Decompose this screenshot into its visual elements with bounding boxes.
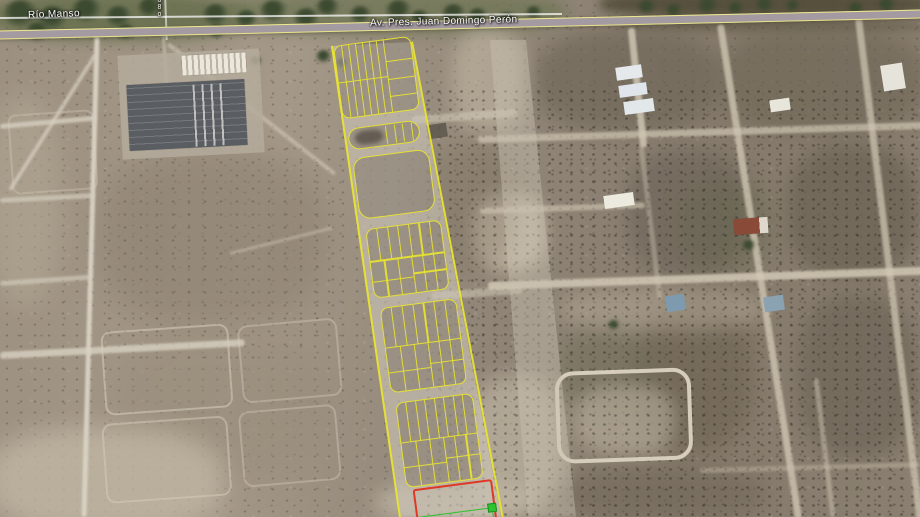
lot-divider <box>424 400 430 439</box>
lot-divider <box>376 229 381 261</box>
substation-poles <box>192 83 225 146</box>
lot-divider <box>397 226 402 258</box>
lot-divider <box>452 396 458 435</box>
lot-divider <box>411 256 417 292</box>
lot-divider <box>413 344 420 388</box>
lot-divider <box>446 453 479 459</box>
lot-divider <box>415 401 421 440</box>
shed-row-3 <box>623 98 655 115</box>
lot-divider <box>433 254 439 290</box>
lot-divider <box>408 225 413 257</box>
lot-divider <box>443 437 450 481</box>
lot-divider <box>390 92 417 97</box>
lot-divider <box>410 122 414 140</box>
lot-divider <box>430 359 463 364</box>
blue-shed-2 <box>763 295 785 313</box>
lot-divider <box>384 260 390 296</box>
map-canvas[interactable]: Río Manso Av. Pres. Juan Domingo Perón o… <box>0 0 920 517</box>
lot-divider <box>454 436 461 480</box>
lot-divider <box>429 222 434 254</box>
lot-divider <box>444 301 450 340</box>
lot-divider <box>438 341 445 385</box>
lot-divider <box>399 346 406 390</box>
lot-divider <box>418 223 423 255</box>
lot-divider <box>465 434 472 478</box>
shed-white-1 <box>603 192 635 209</box>
street-label-rio-manso: Río Manso <box>28 8 80 21</box>
lot-divider <box>415 441 422 485</box>
lot-divider <box>423 303 429 342</box>
parcel-block-f <box>395 393 484 488</box>
blue-shed-1 <box>665 294 686 312</box>
parcel-block-c <box>352 148 436 220</box>
lot-divider <box>391 308 397 347</box>
lot-divider <box>429 439 436 483</box>
parcel-block-b <box>347 119 421 150</box>
truck <box>733 217 768 235</box>
lot-divider <box>373 276 414 283</box>
substation-building <box>182 52 247 75</box>
lot-divider <box>386 58 413 63</box>
lot-divider <box>414 269 446 274</box>
shed-white-3 <box>880 62 906 91</box>
lot-divider <box>402 124 406 142</box>
pill-interior-vegetation <box>354 128 384 146</box>
parcel-block-d <box>365 219 449 298</box>
lot-divider <box>397 258 403 294</box>
vertex-handle[interactable] <box>487 503 497 513</box>
lot-divider <box>389 367 431 374</box>
lot-divider <box>385 126 389 144</box>
substation-yard <box>126 79 247 151</box>
shed-white-2 <box>769 98 790 113</box>
street-label-vertical-partial: o8o <box>156 0 163 18</box>
lot-divider <box>449 340 456 384</box>
lot-divider <box>433 399 439 438</box>
parcel-block-a <box>333 36 420 120</box>
lot-divider <box>433 302 439 341</box>
lot-divider <box>427 343 434 387</box>
lot-divider <box>462 395 468 434</box>
parcel-block-e <box>380 298 468 393</box>
lot-divider <box>401 306 407 345</box>
lot-divider <box>393 125 397 143</box>
lot-divider <box>422 255 428 291</box>
lot-divider <box>405 462 447 469</box>
lot-divider <box>388 76 415 81</box>
shed-row-1 <box>615 64 643 80</box>
lot-divider <box>405 402 411 441</box>
lot-divider <box>387 227 392 259</box>
shed-row-2 <box>618 82 647 98</box>
lot-divider <box>443 398 449 437</box>
lot-divider <box>412 305 418 344</box>
